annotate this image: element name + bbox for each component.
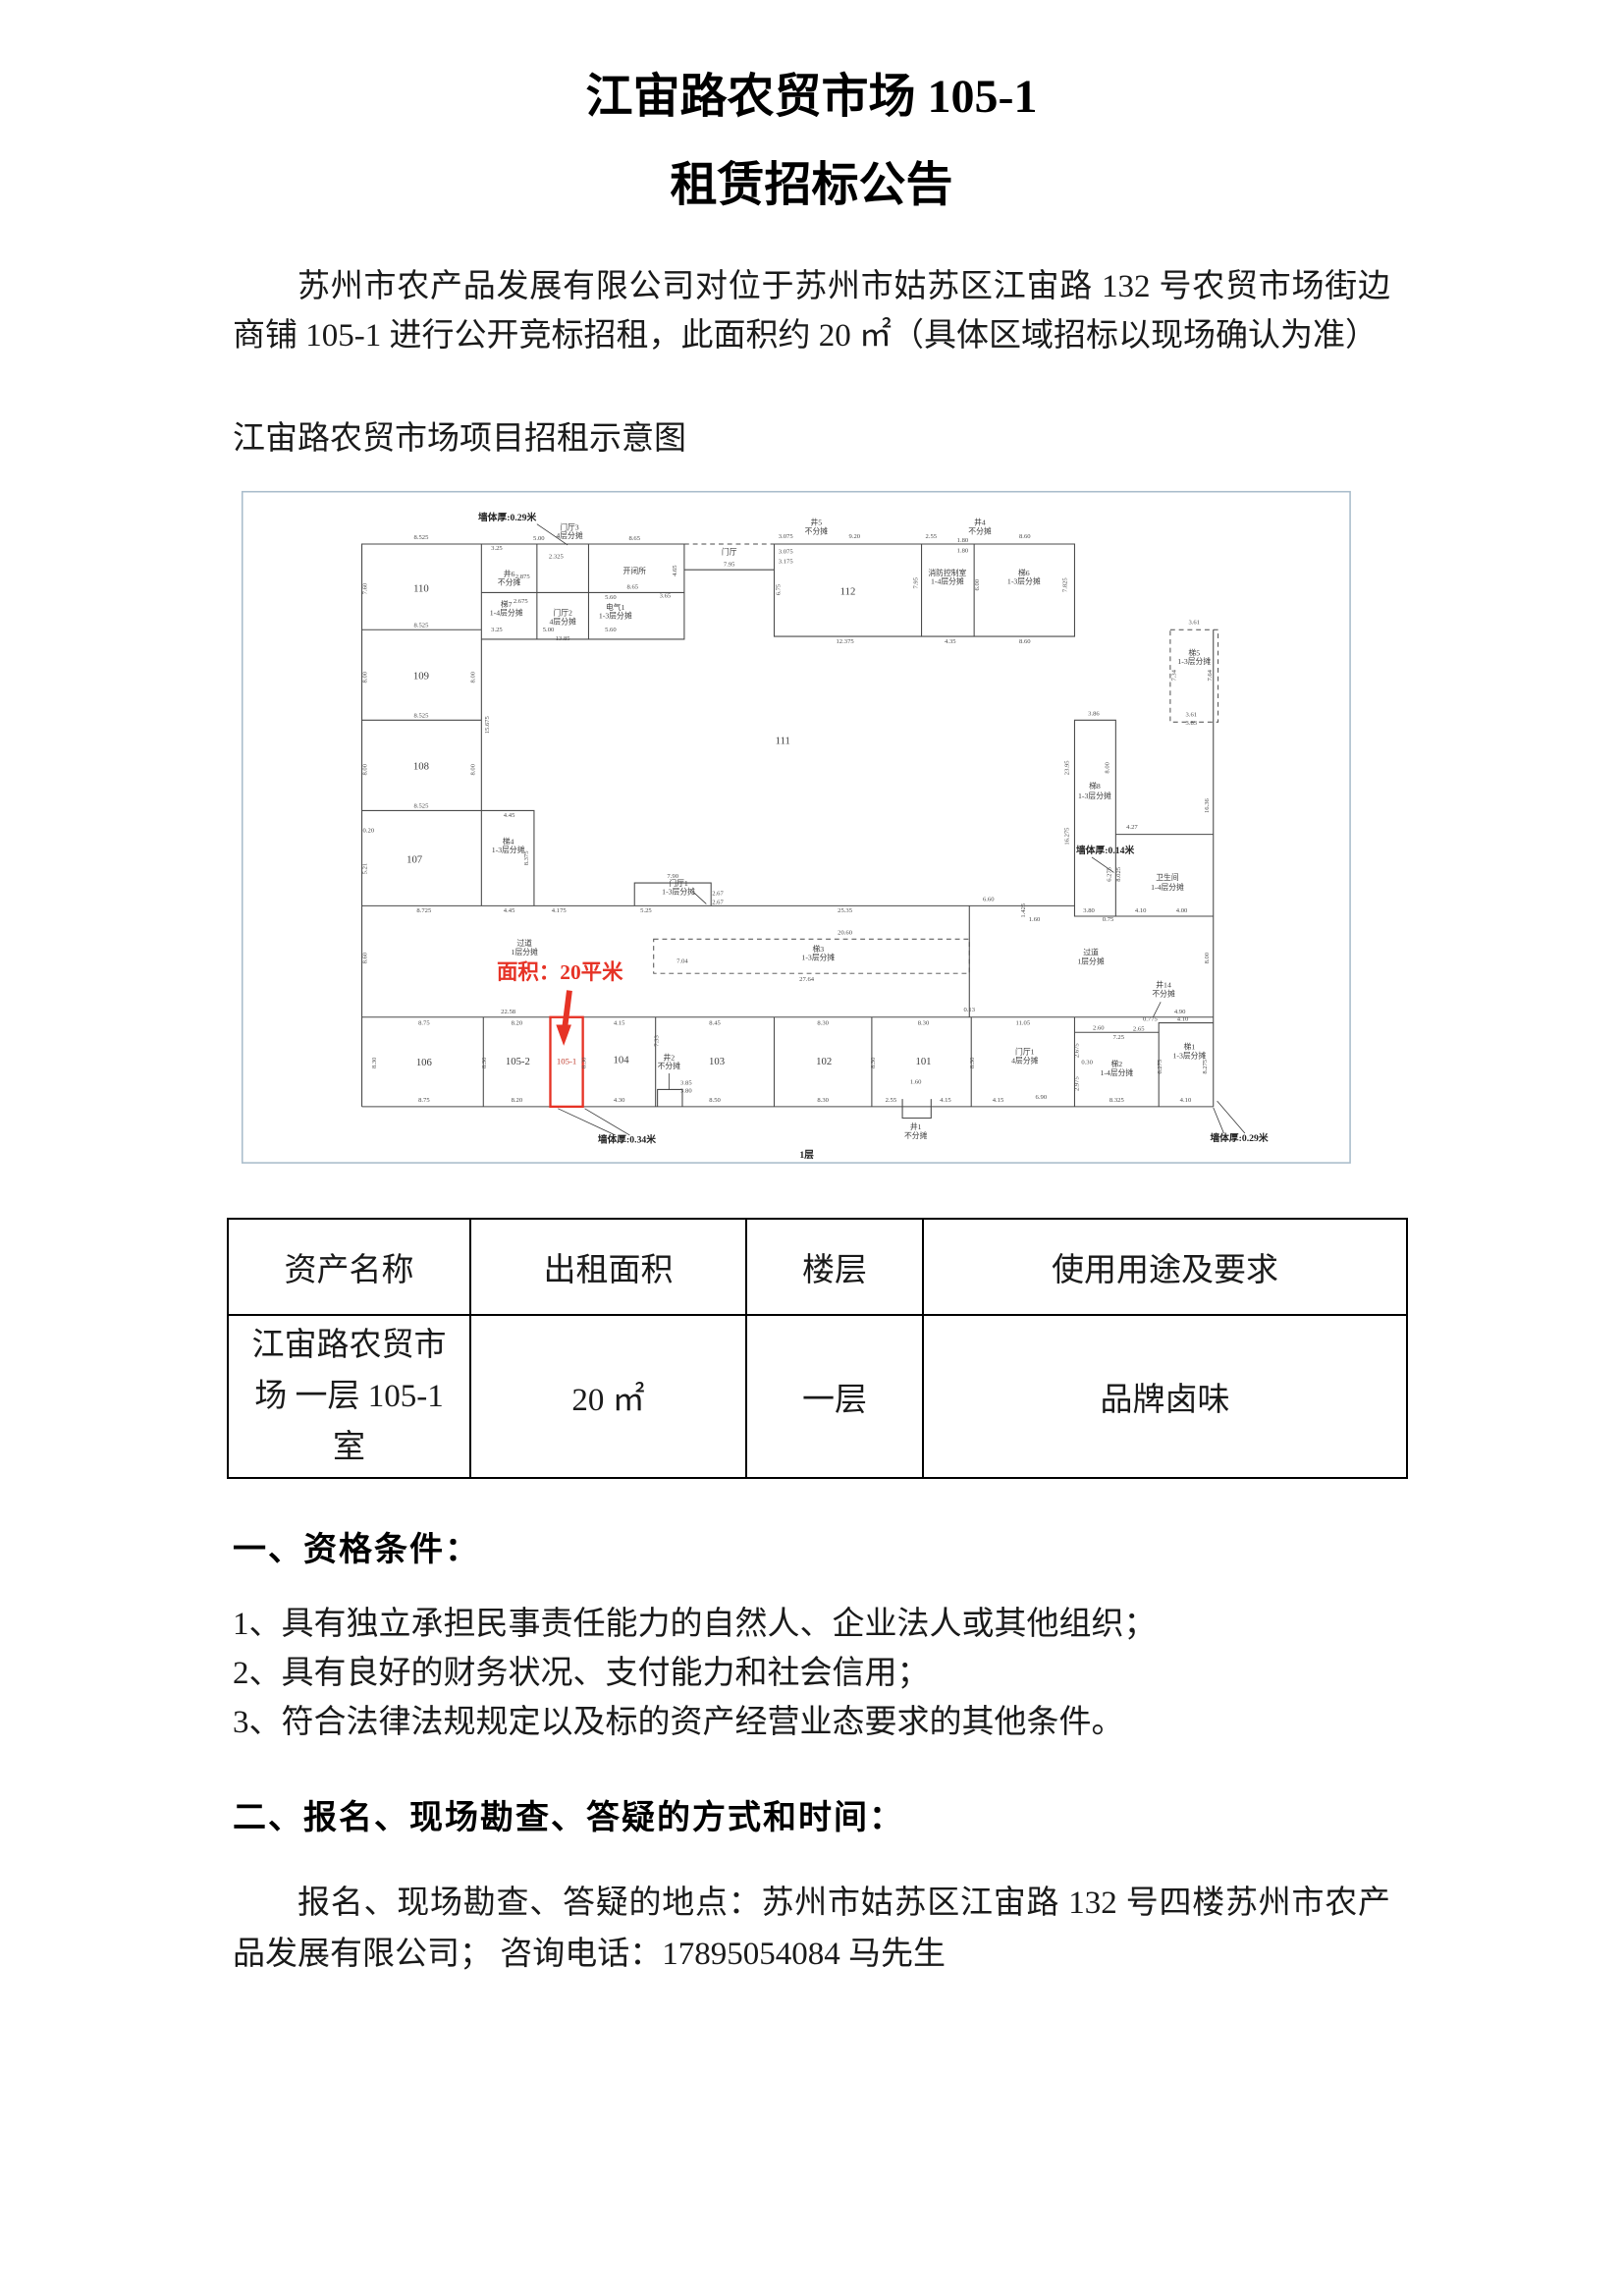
plan-dim-label: 门厅3 [560,521,579,531]
plan-dim-label: 1.425 [1020,902,1027,917]
plan-room-label: 112 [840,585,856,597]
plan-dim-label: 8.30 [817,1019,829,1026]
asset-table: 资产名称 出租面积 楼层 使用用途及要求 江宙路农贸市场 一层 105-1 室 … [227,1218,1408,1479]
plan-dim-label: 5.60 [605,594,617,601]
plan-dim-label: 4.15 [993,1097,1004,1104]
plan-dim-label: 8.30 [481,1057,488,1068]
plan-dim-label: 23.95 [1064,759,1071,774]
document-page: 江宙路农贸市场 105-1 租赁招标公告 苏州市农产品发展有限公司对位于苏州市姑… [0,0,1623,1980]
plan-dim-label: 门厅2 [553,608,572,618]
plan-dim-label: 4.00 [1176,907,1188,914]
plan-dim-label: 2.675 [1073,1042,1080,1057]
qualification-items: 1、具有独立承担民事责任能力的自然人、企业法人或其他组织；2、具有良好的财务状况… [233,1600,1390,1747]
header-asset-name: 资产名称 [228,1219,470,1315]
plan-dim-label: 门厅 [722,546,737,556]
plan-dim-label: 8.00 [1204,952,1211,963]
plan-dim-label: 3.175 [779,558,794,565]
plan-dim-label: 井2 [663,1052,675,1062]
plan-dim-label: 8.60 [1019,638,1031,645]
plan-dim-label: 不分摊 [968,525,992,535]
plan-dim-label: 8.30 [581,1057,588,1068]
plan-dim-label: 3.075 [779,533,794,540]
plan-dim-label: 卫生间 [1156,872,1179,882]
plan-dim-label: 1.80 [957,548,969,555]
plan-room-label: 105-2 [506,1056,530,1067]
intro-paragraph: 苏州市农产品发展有限公司对位于苏州市姑苏区江宙路 132 号农贸市场街边商铺 1… [233,262,1390,360]
plan-dim-label: 不分摊 [904,1130,928,1140]
plan-dim-label: 1.60 [1029,916,1041,923]
plan-dim-label: 6.60 [983,896,995,902]
plan-room-label: 102 [816,1056,832,1067]
plan-room-label: 108 [413,761,429,773]
plan-dim-label: 3.86 [1088,710,1100,717]
plan-dim-label: 2.875 [515,574,531,580]
plan-dim-label: 1-3层分摊 [1078,791,1111,800]
plan-dim-label: 井4 [974,517,986,526]
plan-dim-label: 井14 [1156,980,1171,990]
plan-dim-label: 5.00 [533,535,545,542]
plan-dim-label: 4.10 [1180,1097,1192,1104]
plan-dim-label: 电气1 [606,602,625,612]
section-two-heading: 二、报名、现场勘查、答疑的方式和时间： [233,1790,1390,1838]
plan-dim-label: 22.58 [501,1009,516,1015]
plan-dim-label: 3.80 [1083,907,1095,914]
plan-dim-label: 4.90 [1174,1009,1186,1015]
plan-dim-label: 8.00 [470,763,477,775]
plan-dim-label: 7.25 [1112,1034,1124,1041]
plan-dim-label: 8.65 [627,583,639,590]
plan-dim-label: 5.25 [640,907,652,914]
plan-dim-label: 4.10 [1177,1015,1189,1022]
plan-dim-label: 8.30 [870,1057,877,1068]
plan-dim-label: 7.95 [724,561,735,568]
plan-dim-label: 6.00 [974,578,981,590]
plan-room-label: 106 [416,1057,433,1068]
floor-plan-svg: 110109108107111112106105-2105-1104103102… [233,482,1390,1196]
plan-dim-label: 1层分摊 [1077,956,1104,965]
plan-dim-label: 12.375 [837,638,855,645]
plan-dim-label: 梯4 [503,836,514,846]
plan-dim-label: 4.30 [614,1097,625,1104]
plan-dim-label: 11.05 [1016,1019,1031,1026]
plan-dim-label: 1-3层分摊 [1173,1050,1207,1060]
qualification-item: 2、具有良好的财务状况、支付能力和社会信用； [233,1649,1390,1698]
plan-dim-label: 8.30 [918,1019,930,1026]
qualification-item: 1、具有独立承担民事责任能力的自然人、企业法人或其他组织； [233,1600,1390,1649]
plan-area-annotation: 面积：20平米 [497,960,623,984]
plan-dim-label: 2.325 [549,553,565,560]
plan-dim-label: 3.075 [779,548,794,555]
plan-dim-label: 1-4层分摊 [1151,882,1184,892]
cell-rent-area: 20 ㎡ [470,1315,746,1478]
plan-dim-label: 2.55 [886,1097,897,1104]
plan-dim-label: 8.50 [709,1097,721,1104]
plan-dim-label: 1-4层分摊 [931,576,964,586]
plan-dim-label: 不分摊 [1152,988,1175,998]
plan-dim-label: 梯3 [812,944,824,954]
plan-note-label: 墙体厚:0.29米 [478,511,536,523]
plan-room-label: 103 [709,1056,725,1067]
cell-floor: 一层 [746,1315,923,1478]
plan-dim-label: 8.75 [418,1097,430,1104]
plan-dim-label: 6.75 [775,583,782,595]
plan-dim-label: 1-3层分摊 [801,952,835,961]
plan-dim-label: 7.34 [1171,669,1178,681]
plan-dim-label: 井5 [811,517,823,526]
plan-dim-label: 3.85 [680,1079,692,1086]
plan-note-label: 墙体厚:0.34米 [598,1133,656,1146]
plan-dim-label: 1.60 [910,1078,922,1085]
plan-dim-label: 井6 [504,569,515,578]
plan-dim-label: 梯2 [1110,1059,1122,1068]
plan-room-label: 101 [915,1056,931,1067]
plan-dim-label: 4.15 [940,1097,951,1104]
header-floor: 楼层 [746,1219,923,1315]
plan-dim-label: 27.64 [799,976,815,983]
plan-dim-label: 8.725 [416,907,432,914]
plan-dim-label: 梯7 [501,599,513,609]
section-one-heading: 一、资格条件： [233,1522,1390,1570]
plan-dim-label: 3.80 [680,1087,692,1094]
plan-dim-label: 3.83 [1186,720,1198,727]
plan-dim-label: 8.325 [1109,1097,1125,1104]
plan-note-label: 墙体厚:0.14米 [1076,844,1134,856]
plan-room-label: 107 [406,854,423,866]
contact-paragraph: 报名、现场勘查、答疑的地点：苏州市姑苏区江宙路 132 号四楼苏州市农产品发展有… [233,1878,1390,1980]
plan-dim-label: 3.61 [1188,619,1200,626]
plan-dim-label: 15.675 [484,715,491,734]
plan-dim-label: 7.04 [676,957,688,964]
plan-dim-label: 2.67 [712,899,724,905]
plan-dim-label: 20.60 [838,929,853,936]
plan-dim-label: 7.60 [361,582,368,594]
plan-dim-label: 4.45 [504,907,515,914]
plan-dim-label: 梯5 [1188,647,1200,657]
plan-dim-label: 不分摊 [805,525,829,535]
plan-dim-label: 8.00 [1105,761,1111,773]
figure-caption: 江宙路农贸市场项目招租示意图 [233,411,1390,459]
plan-dim-label: 1-3层分摊 [1007,576,1041,586]
plan-dim-label: 8.00 [470,671,477,683]
plan-dim-label: 4.45 [504,812,515,819]
plan-dim-label: 7.64 [1207,669,1214,681]
plan-room-label: 111 [776,735,790,746]
cell-asset-name: 江宙路农贸市场 一层 105-1 室 [228,1315,470,1478]
asset-table-header-row: 资产名称 出租面积 楼层 使用用途及要求 [228,1219,1407,1315]
plan-dim-label: 0.75 [1103,916,1114,923]
plan-dim-label: 2.65 [1133,1025,1145,1032]
plan-dim-label: 7.95 [913,576,920,588]
plan-dim-label: 7.90 [667,873,678,880]
plan-note-label: 墙体厚:0.29米 [1210,1131,1268,1144]
plan-dim-label: 7.33 [654,1034,661,1046]
plan-dim-label: 4.27 [1126,824,1138,831]
plan-dim-label: 4层分摊 [550,616,576,626]
plan-dim-label: 8.75 [418,1019,430,1026]
plan-dim-label: 0.13 [963,1007,975,1013]
plan-dim-label: 4层分摊 [556,530,582,540]
plan-dim-label: 8.525 [414,622,430,629]
plan-dim-label: 6.275 [1106,866,1112,881]
plan-dim-label: 1-3层分摊 [662,887,695,897]
plan-dim-label: 4.175 [552,907,568,914]
plan-dim-label: 8.30 [817,1097,829,1104]
page-title-line2: 租赁招标公告 [233,155,1390,216]
plan-dim-label: 5.21 [361,863,368,875]
plan-dim-label: 16.275 [1064,827,1071,846]
plan-dim-label: 3.61 [1186,711,1198,718]
plan-dim-label: 0.775 [1143,1015,1159,1022]
plan-dim-label: 过道 [1083,948,1099,957]
plan-dim-label: 4.10 [1135,907,1147,914]
plan-dim-label: 2.55 [926,533,938,540]
plan-dim-label: 3.65 [660,592,672,599]
plan-dim-label: 8.375 [523,850,530,865]
plan-dim-label: 16.36 [1204,797,1211,812]
plan-dim-label: 8.00 [361,671,368,683]
plan-dim-label: 2.67 [712,890,724,897]
plan-room-label: 110 [413,582,429,594]
plan-dim-label: 8.525 [414,712,430,719]
plan-dim-label: 8.525 [414,802,430,809]
plan-dim-label: 5.60 [605,627,617,633]
plan-dim-label: 梯1 [1184,1042,1196,1052]
plan-dim-label: 3.25 [491,545,503,552]
plan-dim-label: 消防控制室 [928,568,966,577]
plan-dim-label: 9.20 [849,533,861,540]
qualification-item: 3、符合法律法规规定以及标的资产经营业态要求的其他条件。 [233,1698,1390,1747]
plan-dim-label: 1-3层分摊 [599,610,632,620]
header-usage: 使用用途及要求 [923,1219,1407,1315]
plan-dim-label: 2.675 [514,598,529,605]
plan-dim-label: 8.275 [1202,1059,1209,1073]
plan-dim-label: 6.275 [1157,1059,1163,1073]
plan-dim-label: 8.65 [628,535,640,542]
plan-room-label: 105-1 [557,1056,576,1066]
plan-dim-label: 2.975 [1073,1075,1080,1090]
plan-dim-label: 4层分摊 [1011,1055,1038,1065]
plan-dim-label: 8.00 [361,763,368,775]
plan-dim-label: 6.90 [1036,1094,1048,1101]
plan-dim-label: 1-3层分摊 [1177,656,1211,666]
plan-dim-label: 梯6 [1018,568,1030,577]
plan-note-label: 1层 [799,1149,814,1161]
plan-room-label: 104 [614,1054,630,1066]
plan-dim-label: 5.00 [543,627,555,633]
plan-dim-label: 不分摊 [658,1061,681,1070]
plan-dim-label: 1-3层分摊 [492,845,525,854]
plan-dim-label: 1层分摊 [512,947,538,957]
plan-dim-label: 8.025 [1115,866,1122,881]
plan-dim-label: 7.825 [1062,576,1069,591]
plan-dim-label: 井1 [910,1121,922,1131]
plan-dim-label: 4.65 [672,564,678,575]
plan-room-label: 109 [413,670,429,682]
plan-dim-label: 1-4层分摊 [490,608,523,618]
floor-plan-figure: 110109108107111112106105-2105-1104103102… [233,482,1390,1196]
plan-dim-label: 8.60 [361,952,368,963]
plan-dim-label: 3.25 [491,627,503,633]
plan-dim-label: 8.20 [512,1097,523,1104]
plan-dim-label: 1.80 [957,537,969,544]
plan-dim-label: 开闭所 [623,566,647,575]
plan-dim-label: 8.30 [371,1057,378,1068]
plan-dim-label: 13.85 [556,635,571,642]
figure-frame [243,491,1350,1162]
plan-dim-label: 8.45 [709,1019,721,1026]
plan-dim-label: 8.525 [414,534,430,541]
cell-usage: 品牌卤味 [923,1315,1407,1478]
plan-dim-label: 0.30 [1081,1059,1093,1066]
plan-dim-label: 1-4层分摊 [1100,1067,1133,1077]
plan-dim-label: 8.30 [969,1057,976,1068]
plan-dim-label: 0.20 [363,828,375,835]
plan-dim-label: 4.35 [945,638,956,645]
asset-table-data-row: 江宙路农贸市场 一层 105-1 室 20 ㎡ 一层 品牌卤味 [228,1315,1407,1478]
plan-dim-label: 门厅1 [1015,1046,1035,1056]
plan-dim-label: 梯8 [1089,781,1101,791]
plan-dim-label: 2.60 [1093,1024,1105,1031]
header-rent-area: 出租面积 [470,1219,746,1315]
plan-dim-label: 8.60 [1019,533,1031,540]
plan-dim-label: 4.15 [614,1019,625,1026]
plan-dim-label: 8.20 [512,1019,523,1026]
page-title-line1: 江宙路农贸市场 105-1 [233,0,1390,128]
plan-dim-label: 25.35 [838,907,853,914]
plan-dim-label: 过道 [516,938,532,948]
